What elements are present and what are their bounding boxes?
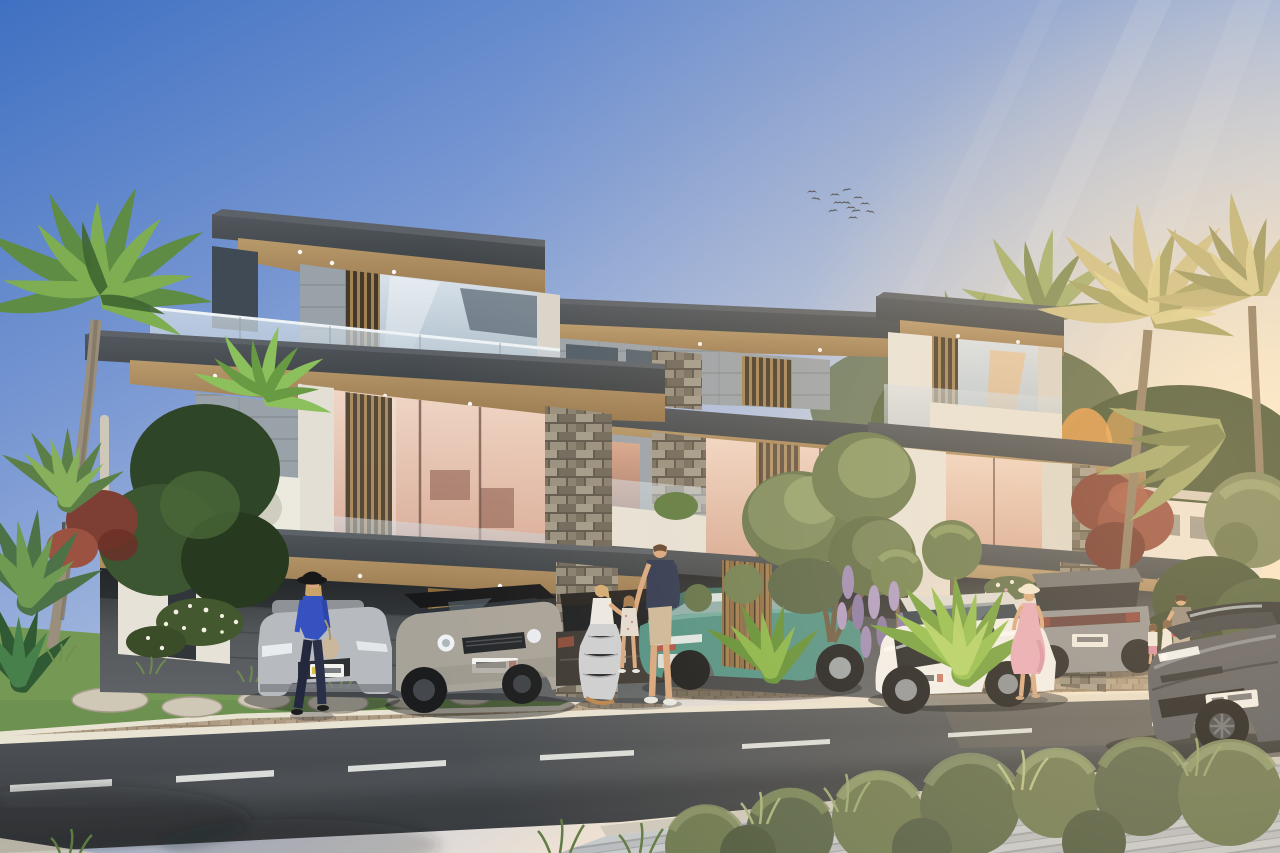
- golden-hour-overlay: [0, 0, 1280, 853]
- scene-canvas: [0, 0, 1280, 853]
- architectural-rendering: [0, 0, 1280, 853]
